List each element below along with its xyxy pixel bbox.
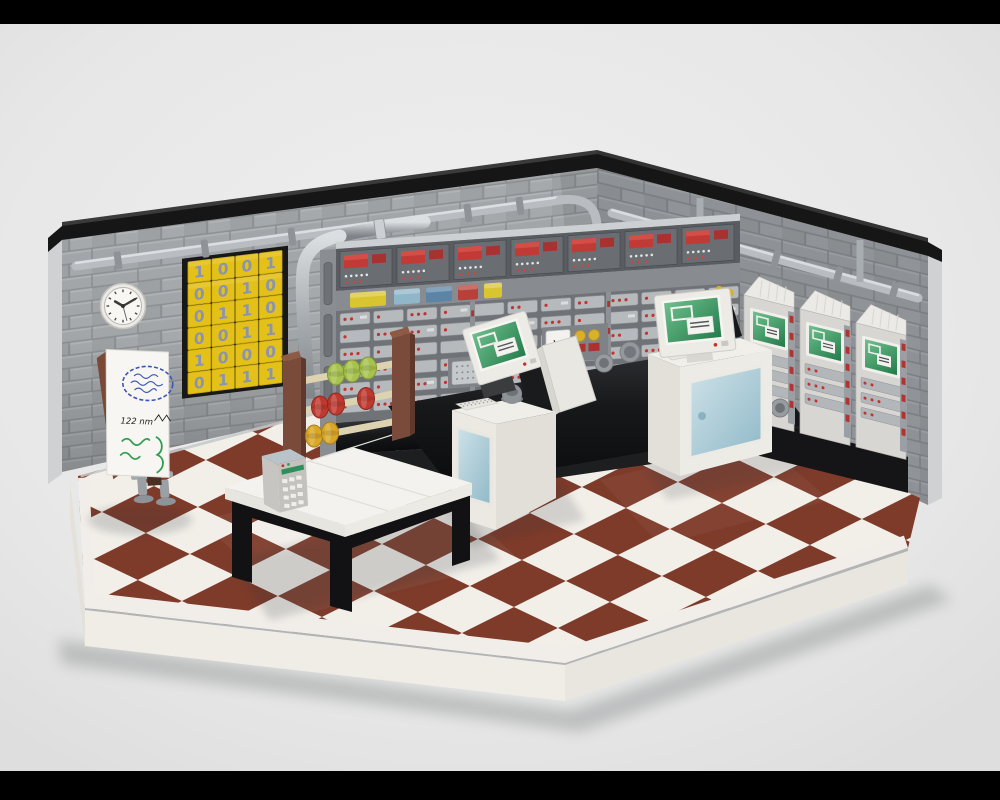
bead-groove — [322, 430, 339, 436]
table-leg — [232, 497, 252, 583]
poster-digit: 1 — [242, 301, 253, 320]
poster-digit: 0 — [265, 276, 276, 295]
louver-slat — [608, 310, 638, 324]
slat-label — [461, 308, 468, 311]
calculator-key — [298, 500, 304, 505]
poster-digit: 0 — [194, 285, 205, 304]
poster-digit: 0 — [218, 282, 229, 301]
poster-digit: 0 — [218, 260, 229, 279]
key-dot — [476, 401, 478, 403]
right-wall-outer-face — [928, 256, 942, 505]
disk-slot — [721, 341, 728, 347]
poster-digit: 1 — [194, 263, 205, 282]
calculator-key — [296, 475, 302, 480]
poster-digit: 1 — [265, 254, 276, 273]
key-dot — [460, 404, 462, 406]
key-dot — [472, 402, 474, 404]
key-dot — [468, 402, 470, 404]
abacus-post-side — [410, 333, 415, 436]
key-dot — [483, 402, 485, 404]
stand-leg — [137, 477, 147, 496]
panel-red-button — [429, 250, 443, 260]
panel-red-button — [657, 234, 671, 244]
bottom-letterbox-bar — [0, 771, 1000, 800]
calculator-key — [290, 485, 296, 490]
clock-center — [121, 304, 125, 308]
poster-digit: 0 — [265, 298, 276, 317]
key-dot — [487, 401, 489, 403]
bead-groove — [360, 365, 377, 371]
poster-digit: 1 — [194, 351, 205, 370]
bead-groove — [306, 433, 323, 439]
louver-slat — [474, 302, 504, 316]
side-vent-slot — [324, 262, 332, 305]
poster-digit: 0 — [242, 257, 253, 276]
slat-label — [561, 301, 568, 304]
panel-red-button — [714, 230, 728, 240]
calculator-key — [289, 477, 295, 482]
key-dot — [484, 400, 486, 402]
drum-piece-inner — [599, 358, 609, 368]
abacus-post — [392, 333, 410, 441]
drum-piece — [624, 346, 636, 358]
poster-digit: 1 — [218, 371, 229, 390]
panel-red-button — [543, 242, 557, 252]
panel-red-button — [600, 238, 614, 248]
key-dot — [491, 400, 493, 402]
whiteboard-shadow — [88, 505, 192, 535]
divider-led — [790, 366, 794, 374]
calculator-key — [297, 483, 303, 488]
divider-led — [607, 301, 610, 307]
poster-digit: 1 — [265, 365, 276, 384]
divider-led — [846, 397, 850, 405]
red-button — [589, 343, 600, 352]
key-dot — [463, 405, 465, 407]
poster-digit: 0 — [218, 326, 229, 345]
yellow-indicator — [589, 329, 600, 341]
bead-groove — [344, 368, 361, 374]
table-leg — [330, 527, 352, 612]
divider-led — [790, 349, 794, 357]
divider-led — [902, 428, 906, 436]
slat-label — [360, 315, 367, 318]
poster-digit: 0 — [194, 307, 205, 326]
key-dot — [488, 399, 490, 401]
divider-led — [902, 394, 906, 402]
bead-groove — [328, 371, 345, 377]
divider-led — [471, 310, 474, 316]
whiteboard-note: 122 nm — [120, 417, 153, 428]
poster-digit: 0 — [242, 346, 253, 365]
screen-window — [687, 316, 715, 335]
divider-led — [846, 414, 850, 422]
poster-digit: 0 — [194, 374, 205, 393]
divider-led — [846, 329, 850, 337]
divider-led — [846, 380, 850, 388]
divider-led — [790, 332, 794, 340]
lego-render-canvas: 100100100110001110000111 — [0, 0, 1000, 800]
calculator-key — [282, 487, 288, 492]
calculator-key — [291, 502, 297, 507]
calculator-key — [282, 479, 288, 484]
divider-led — [902, 377, 906, 385]
whiteboard-surface — [98, 345, 177, 482]
divider-led — [846, 346, 850, 354]
screenshot-root: 100100100110001110000111 — [0, 0, 1000, 800]
desk2-glass-window — [690, 366, 762, 458]
poster-digit: 1 — [242, 368, 253, 387]
glass-detail — [698, 412, 706, 420]
key-dot — [475, 403, 477, 405]
key-dot — [464, 403, 466, 405]
bead-groove — [358, 396, 375, 402]
calculator-key — [297, 492, 303, 497]
wall-clock — [101, 284, 146, 329]
divider-led — [790, 315, 794, 323]
calculator-key — [284, 503, 290, 508]
key-dot — [471, 404, 473, 406]
poster-digit: 1 — [265, 320, 276, 339]
left-wall-outer-face — [48, 240, 62, 484]
drum-piece-inner — [775, 403, 785, 413]
abacus-post-side — [301, 357, 306, 462]
poster-digit: 1 — [242, 279, 253, 298]
divider-led — [790, 400, 794, 408]
slat-label — [628, 314, 635, 317]
key-dot — [480, 400, 482, 402]
desk-calculator — [260, 448, 310, 514]
divider-led — [790, 383, 794, 391]
calculator-key — [283, 495, 289, 500]
panel-red-button — [372, 254, 386, 264]
panel-red-button — [486, 246, 500, 256]
poster-digit: 0 — [218, 348, 229, 367]
poster-digit: 1 — [218, 304, 229, 323]
divider-led — [902, 360, 906, 368]
poster-digit: 1 — [242, 323, 253, 342]
top-letterbox-bar — [0, 0, 1000, 24]
calculator-key — [290, 493, 296, 498]
poster-digit: 0 — [194, 329, 205, 348]
binary-poster: 100100100110001110000111 — [182, 246, 288, 399]
desk2-left-face — [648, 354, 680, 476]
bead-groove — [312, 404, 329, 410]
divider-led — [902, 343, 906, 351]
side-vent-slot — [324, 314, 332, 357]
bead-groove — [328, 401, 345, 407]
key-dot — [479, 403, 481, 405]
slat-label — [427, 381, 434, 384]
key-dot — [467, 405, 469, 407]
divider-led — [902, 411, 906, 419]
slat-label — [427, 328, 434, 331]
poster-digit: 0 — [265, 343, 276, 362]
divider-led — [846, 363, 850, 371]
